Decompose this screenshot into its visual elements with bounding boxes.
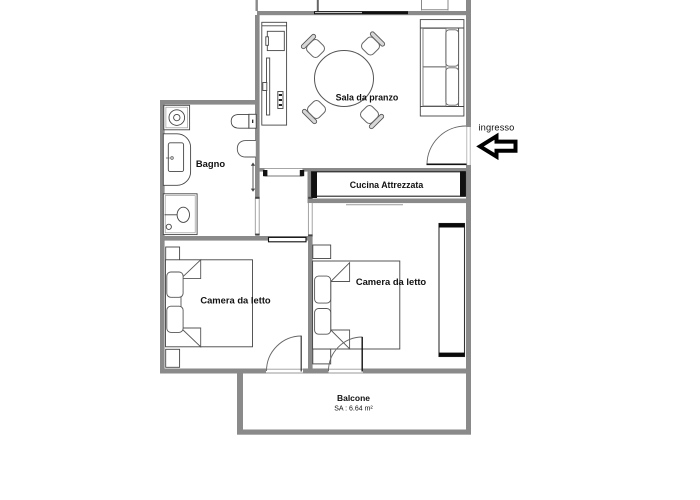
- svg-text:Sala da pranzo: Sala da pranzo: [336, 93, 399, 103]
- svg-text:Bagno: Bagno: [196, 158, 225, 169]
- svg-text:Camera da letto: Camera da letto: [356, 276, 427, 287]
- svg-text:ingresso: ingresso: [479, 123, 515, 133]
- svg-text:SA : 6.64 m²: SA : 6.64 m²: [334, 405, 373, 412]
- svg-text:Camera da letto: Camera da letto: [200, 294, 271, 305]
- svg-text:Cucina Attrezzata: Cucina Attrezzata: [350, 180, 424, 190]
- svg-text:Balcone: Balcone: [337, 393, 370, 403]
